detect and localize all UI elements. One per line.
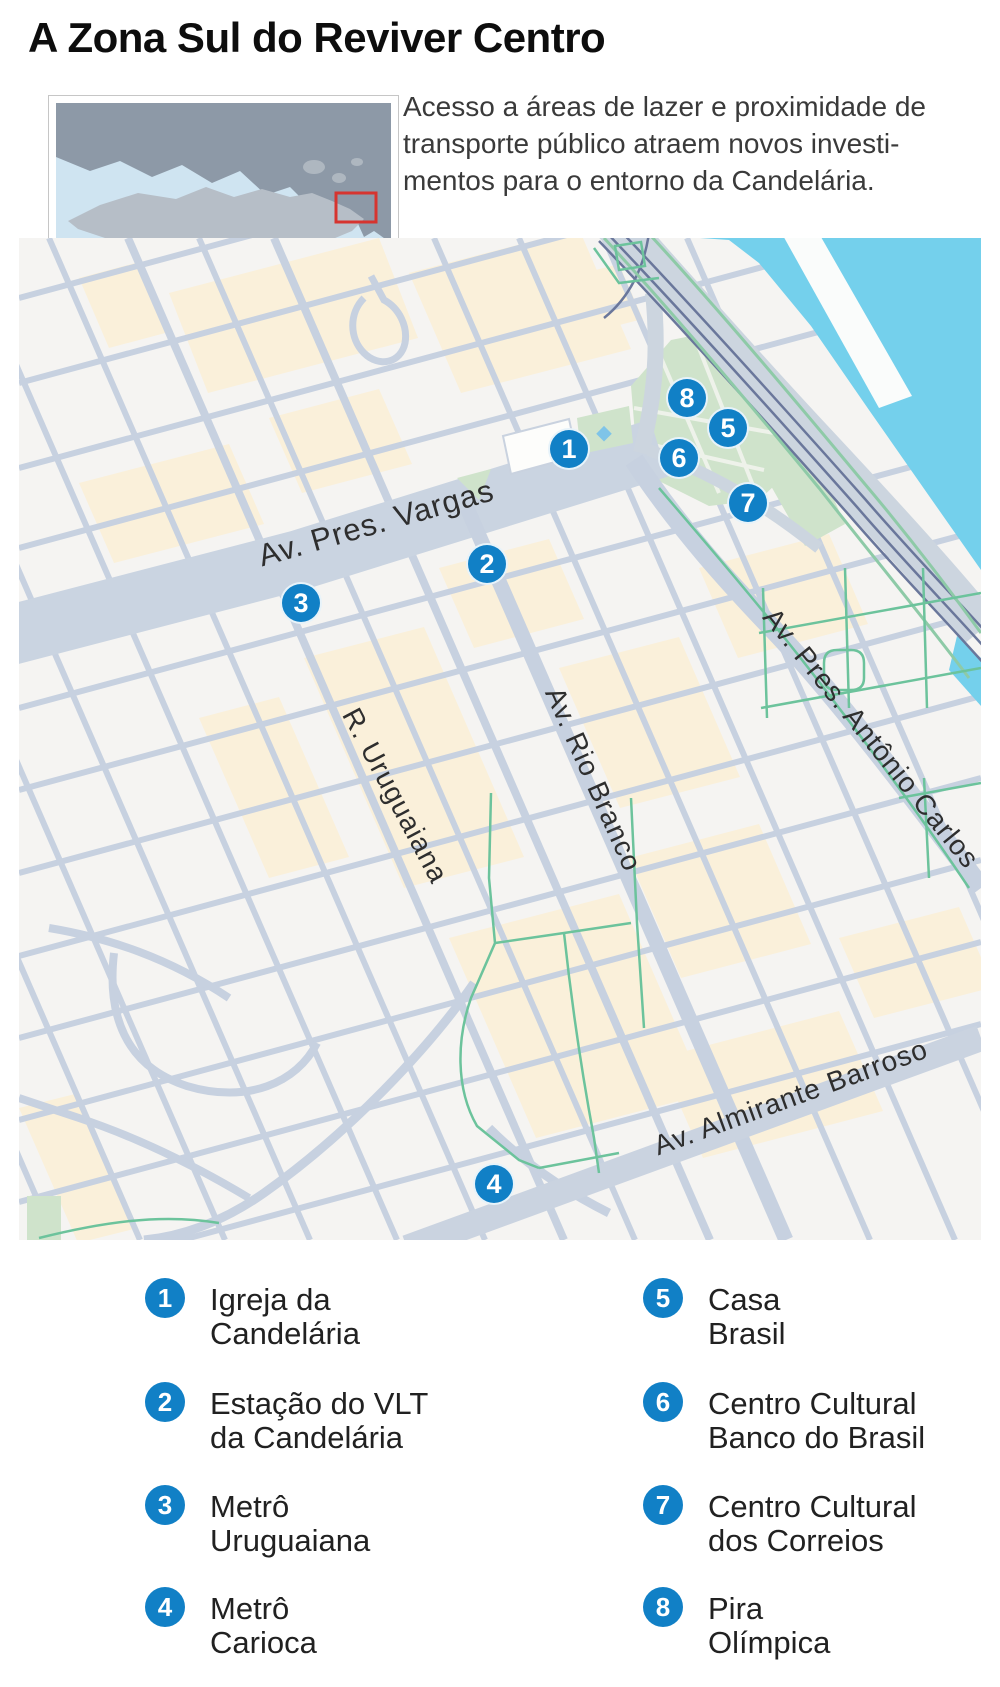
- map-marker-6: 6: [658, 437, 700, 479]
- intro-line: transporte público atraem novos investi-: [403, 125, 978, 162]
- legend-circle-4: 4: [145, 1587, 185, 1627]
- map-marker-3: 3: [280, 582, 322, 624]
- legend-circle-7: 7: [643, 1485, 683, 1525]
- marker-number: 6: [671, 443, 686, 474]
- map-marker-7: 7: [727, 482, 769, 524]
- legend-label-6: Centro CulturalBanco do Brasil: [708, 1387, 925, 1455]
- marker-number: 5: [720, 413, 735, 444]
- map-marker-5: 5: [707, 407, 749, 449]
- marker-number: 4: [486, 1169, 501, 1200]
- legend-label-4: MetrôCarioca: [210, 1592, 317, 1660]
- basemap: Av. Pres. Vargas Av. Rio Branco R. Urugu…: [19, 238, 981, 1240]
- marker-number: 2: [479, 549, 494, 580]
- legend-label-5: CasaBrasil: [708, 1283, 786, 1351]
- inset-island: [332, 173, 346, 183]
- inset-island: [303, 160, 325, 174]
- legend-circle-3: 3: [145, 1485, 185, 1525]
- main-map: Av. Pres. Vargas Av. Rio Branco R. Urugu…: [19, 238, 981, 1240]
- infographic: A Zona Sul do Reviver Centro Acesso a ár…: [0, 0, 1000, 1687]
- legend-circle-8: 8: [643, 1587, 683, 1627]
- legend-label-2: Estação do VLTda Candelária: [210, 1387, 428, 1455]
- legend-circle-6: 6: [643, 1382, 683, 1422]
- page-title: A Zona Sul do Reviver Centro: [28, 14, 605, 62]
- legend-circle-5: 5: [643, 1278, 683, 1318]
- legend-label-1: Igreja daCandelária: [210, 1283, 360, 1351]
- marker-number: 3: [293, 588, 308, 619]
- legend-circle-1: 1: [145, 1278, 185, 1318]
- map-marker-4: 4: [473, 1163, 515, 1205]
- intro-paragraph: Acesso a áreas de lazer e proximidade de…: [403, 88, 978, 199]
- legend-label-7: Centro Culturaldos Correios: [708, 1490, 916, 1558]
- legend-circle-2: 2: [145, 1382, 185, 1422]
- inset-island: [351, 158, 363, 166]
- marker-number: 7: [740, 488, 755, 519]
- marker-number: 8: [679, 383, 694, 414]
- map-marker-8: 8: [666, 377, 708, 419]
- map-marker-1: 1: [548, 428, 590, 470]
- legend-label-8: PiraOlímpica: [708, 1592, 830, 1660]
- map-marker-2: 2: [466, 543, 508, 585]
- marker-number: 1: [561, 434, 576, 465]
- intro-line: Acesso a áreas de lazer e proximidade de: [403, 88, 978, 125]
- intro-line: mentos para o entorno da Candelária.: [403, 162, 978, 199]
- legend-label-3: MetrôUruguaiana: [210, 1490, 370, 1558]
